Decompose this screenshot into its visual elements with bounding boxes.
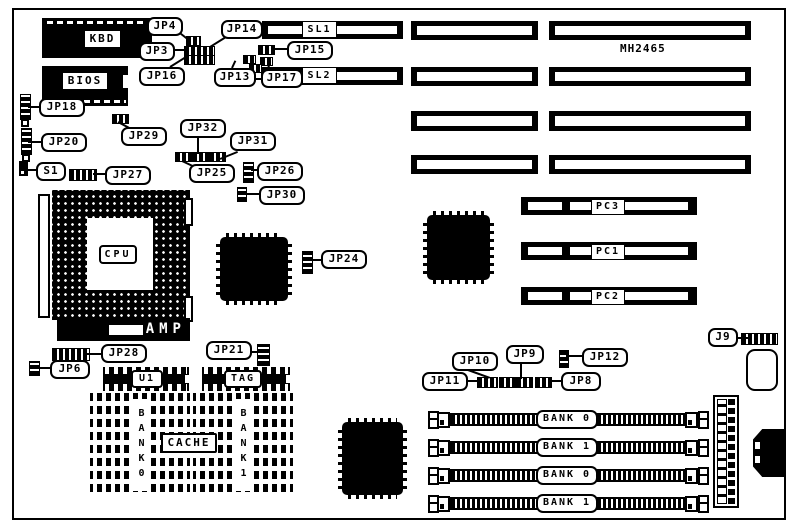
callout-jp12: JP12 — [582, 348, 628, 367]
pc3-label: PC3 — [591, 199, 625, 215]
isa-slot-4-left — [411, 155, 538, 174]
jp24-jumper — [302, 251, 313, 274]
bios-label: BIOS — [63, 73, 107, 89]
callout-jp28: JP28 — [101, 344, 147, 363]
jp32-jumper — [192, 152, 209, 162]
simm-socket-4: BANK 1 — [428, 495, 707, 513]
callout-jp16: JP16 — [139, 67, 185, 86]
isa-slot-2-left-key — [417, 72, 532, 81]
lead-jp30 — [243, 193, 259, 195]
isa-slot-4-left-key — [417, 160, 532, 169]
board-model: MH2465 — [620, 42, 666, 55]
isa-slot-2-right — [549, 67, 751, 86]
j9-jumper — [741, 333, 778, 345]
isa-slot-2-right-key — [555, 72, 745, 81]
cpu-label: CPU — [99, 245, 137, 264]
cpu-key-notch-top — [184, 198, 193, 226]
jp12-jumper — [559, 350, 569, 368]
lead-jp15 — [272, 48, 287, 50]
jp21-jumper — [257, 344, 270, 366]
tag-label: TAG — [224, 370, 262, 388]
callout-jp18: JP18 — [39, 98, 85, 117]
callout-j9: J9 — [708, 328, 738, 347]
jp3-jumper-row2 — [184, 55, 215, 65]
callout-jp27: JP27 — [105, 166, 151, 185]
callout-jp30: JP30 — [259, 186, 305, 205]
callout-jp21: JP21 — [206, 341, 252, 360]
u1-label: U1 — [131, 370, 163, 388]
jp15-jumper — [258, 45, 275, 55]
lead-jp8 — [548, 380, 562, 382]
callout-jp3: JP3 — [139, 42, 175, 61]
bios-dashed-line — [84, 100, 126, 103]
jp8-jumper — [535, 377, 552, 388]
callout-jp8: JP8 — [561, 372, 601, 391]
jp26-jumper — [243, 162, 254, 183]
isa-slot-1-left-key — [417, 26, 532, 35]
bios-notch — [123, 75, 128, 88]
kbd-dashed-line — [47, 21, 147, 24]
cpu-socket-lever — [38, 194, 50, 318]
lead-jp9 — [520, 363, 522, 379]
isa-slot-2-left — [411, 67, 538, 86]
isa-slot-4-right-key — [555, 160, 745, 169]
simm-socket-2: BANK 1 — [428, 439, 707, 457]
callout-jp24: JP24 — [321, 250, 367, 269]
callout-jp26: JP26 — [257, 162, 303, 181]
cache-bank0-label: BANK0 — [133, 399, 150, 491]
slot-label-sl1: SL1 — [302, 21, 337, 38]
jp9-jumper — [516, 377, 533, 388]
jp27-jumper — [69, 169, 97, 181]
jp18-pad — [21, 119, 29, 127]
callout-jp6: JP6 — [50, 360, 90, 379]
callout-jp9: JP9 — [506, 345, 544, 364]
power-connector — [713, 395, 739, 508]
isa-slot-1-left — [411, 21, 538, 40]
simm-socket-1: BANK 0 — [428, 411, 707, 429]
qfp-chip-2 — [423, 211, 494, 284]
simm-bank-label-4: BANK 1 — [536, 494, 598, 513]
qfp-chip-1 — [216, 233, 292, 305]
isa-slot-3-left-key — [417, 116, 532, 126]
callout-s1: S1 — [36, 162, 66, 181]
lead-jp32 — [197, 137, 199, 154]
isa-slot-1-right — [549, 21, 751, 40]
isa-slot-3-right — [549, 111, 751, 131]
amp-regulator: AMP — [57, 318, 190, 341]
cache-bank1-label: BANK1 — [235, 399, 252, 491]
power-connector-pins-left — [717, 399, 727, 504]
lead-jp6 — [37, 367, 50, 369]
callout-jp14: JP14 — [221, 20, 263, 39]
callout-jp11: JP11 — [422, 372, 468, 391]
kbd-label: KBD — [85, 31, 120, 47]
connector-outline — [746, 349, 778, 391]
jp13-jumper — [243, 55, 256, 64]
cache-label: CACHE — [161, 433, 217, 453]
simm-socket-3: BANK 0 — [428, 467, 707, 485]
slot-label-sl2: SL2 — [302, 67, 337, 84]
simm-bank-label-3: BANK 0 — [536, 466, 598, 485]
pc2-label: PC2 — [591, 289, 625, 305]
isa-slot-3-left — [411, 111, 538, 131]
isa-slot-4-right — [549, 155, 751, 174]
keyboard-din-connector — [753, 429, 786, 477]
simm-bank-label-2: BANK 1 — [536, 438, 598, 457]
power-connector-pins-right — [728, 399, 735, 504]
callout-jp10: JP10 — [452, 352, 498, 371]
isa-slot-1-right-key — [555, 26, 745, 35]
callout-jp25: JP25 — [189, 164, 235, 183]
jp11-jumper — [477, 377, 498, 388]
jp10-jumper — [499, 377, 516, 388]
pc1-label: PC1 — [591, 244, 625, 260]
lead-jp28 — [86, 353, 101, 355]
callout-jp4: JP4 — [147, 17, 183, 36]
callout-jp32: JP32 — [180, 119, 226, 138]
amp-window — [109, 325, 143, 335]
callout-jp13: JP13 — [214, 68, 256, 87]
simm-bank-label-1: BANK 0 — [536, 410, 598, 429]
isa-slot-3-right-key — [555, 116, 745, 126]
callout-jp17: JP17 — [261, 69, 303, 88]
callout-jp29: JP29 — [121, 127, 167, 146]
qfp-chip-3 — [338, 418, 407, 499]
callout-jp15: JP15 — [287, 41, 333, 60]
amp-label: AMP — [146, 321, 186, 337]
lead-jp12 — [566, 355, 583, 357]
callout-jp31: JP31 — [230, 132, 276, 151]
lead-jp20 — [28, 141, 42, 143]
callout-jp20: JP20 — [41, 133, 87, 152]
motherboard-diagram: KBD BIOS SL1 SL2 MH2465 JP4 JP3 JP14 JP1… — [0, 0, 791, 527]
